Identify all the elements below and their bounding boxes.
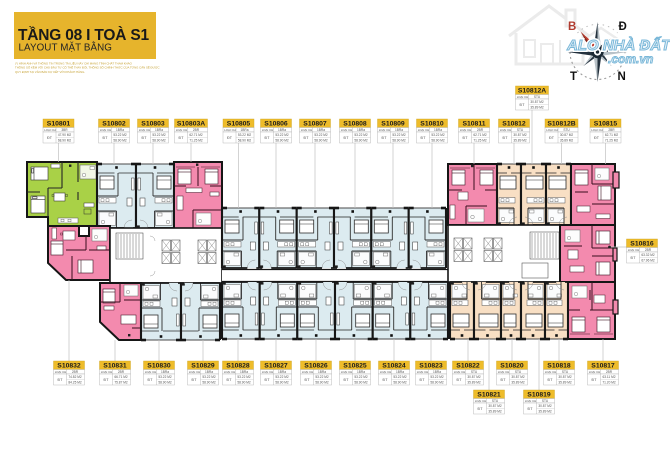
- svg-text:ĐT: ĐT: [501, 378, 507, 382]
- svg-text:S10820: S10820: [500, 363, 524, 370]
- svg-text:53.22 M2: 53.22 M2: [393, 375, 407, 379]
- svg-text:ĐT: ĐT: [148, 378, 154, 382]
- svg-text:58.90 M2: 58.90 M2: [354, 139, 368, 143]
- svg-text:ĐT: ĐT: [179, 136, 185, 140]
- svg-text:STU: STU: [517, 128, 524, 132]
- svg-text:1BRa: 1BRa: [357, 370, 365, 374]
- svg-text:S10809: S10809: [381, 121, 405, 128]
- svg-text:STU: STU: [562, 370, 569, 374]
- svg-text:STU: STU: [515, 370, 522, 374]
- svg-text:S10824: S10824: [382, 363, 406, 370]
- svg-text:ĐT: ĐT: [421, 136, 427, 140]
- svg-text:58.90 M2: 58.90 M2: [152, 139, 166, 143]
- svg-text:35.89 M2: 35.89 M2: [513, 139, 527, 143]
- svg-text:ĐT: ĐT: [520, 103, 526, 107]
- svg-text:ĐT: ĐT: [265, 136, 271, 140]
- svg-text:ĐT: ĐT: [265, 378, 271, 382]
- svg-text:ĐT: ĐT: [528, 407, 534, 411]
- svg-text:71.25 M2: 71.25 M2: [605, 139, 619, 143]
- svg-text:ĐT: ĐT: [457, 378, 463, 382]
- svg-text:LOẠI CH: LOẠI CH: [380, 370, 392, 374]
- svg-text:N: N: [618, 71, 626, 83]
- svg-text:1BRa: 1BRa: [155, 128, 163, 132]
- svg-text:ĐT: ĐT: [104, 378, 110, 382]
- svg-text:S10817: S10817: [591, 363, 615, 370]
- svg-text:S10821: S10821: [477, 392, 501, 399]
- svg-text:2BR: 2BR: [72, 370, 79, 374]
- svg-text:ĐT: ĐT: [549, 136, 555, 140]
- svg-text:LOẠI CH: LOẠI CH: [176, 128, 188, 132]
- svg-text:S10806: S10806: [264, 121, 288, 128]
- svg-text:58.90 M2: 58.90 M2: [238, 139, 252, 143]
- svg-text:ĐT: ĐT: [192, 378, 198, 382]
- svg-text:LOẠI CH: LOẠI CH: [454, 370, 466, 374]
- svg-text:LOẠI CH: LOẠI CH: [460, 128, 472, 132]
- svg-text:53.22 M2: 53.22 M2: [392, 133, 406, 137]
- svg-text:LOẠI CH: LOẠI CH: [379, 128, 391, 132]
- svg-text:ĐT: ĐT: [142, 136, 148, 140]
- svg-text:STU: STU: [534, 95, 541, 99]
- svg-text:LOẠI CH: LOẠI CH: [189, 370, 201, 374]
- svg-text:ĐT: ĐT: [463, 136, 469, 140]
- svg-text:S10816: S10816: [630, 241, 654, 248]
- svg-text:LOẠI CH: LOẠI CH: [301, 128, 313, 132]
- svg-text:ĐT: ĐT: [305, 378, 311, 382]
- svg-text:63.32 M2: 63.32 M2: [641, 253, 655, 257]
- svg-text:ĐT: ĐT: [227, 136, 233, 140]
- svg-text:47.90 M2: 47.90 M2: [58, 133, 72, 137]
- svg-text:1BRa: 1BRa: [241, 128, 249, 132]
- svg-text:S10829: S10829: [191, 363, 215, 370]
- svg-text:S10819: S10819: [527, 392, 551, 399]
- svg-text:66.71 M2: 66.71 M2: [114, 375, 128, 379]
- svg-text:84.25 M2: 84.25 M2: [68, 381, 82, 385]
- svg-text:1BRa: 1BRa: [278, 128, 286, 132]
- svg-text:LOẠI CH: LOẠI CH: [591, 128, 603, 132]
- svg-text:2BR: 2BR: [118, 370, 125, 374]
- svg-text:30.87 M2: 30.87 M2: [511, 375, 525, 379]
- svg-text:67.96 M2: 67.96 M2: [641, 259, 655, 263]
- svg-text:58.90 M2: 58.90 M2: [315, 381, 329, 385]
- svg-text:71.25 M2: 71.25 M2: [189, 139, 203, 143]
- svg-text:35.89 M2: 35.89 M2: [488, 410, 502, 414]
- svg-text:S10818: S10818: [547, 363, 571, 370]
- svg-text:2BR: 2BR: [193, 128, 200, 132]
- svg-text:58.90 M2: 58.90 M2: [392, 139, 406, 143]
- svg-text:2BR: 2BR: [606, 370, 613, 374]
- svg-text:68.90 M2: 68.90 M2: [58, 139, 72, 143]
- svg-text:S10823: S10823: [419, 363, 443, 370]
- svg-text:S10802: S10802: [102, 121, 126, 128]
- svg-text:1BRa: 1BRa: [396, 370, 404, 374]
- svg-text:S10830: S10830: [147, 363, 171, 370]
- svg-text:ĐT: ĐT: [478, 407, 484, 411]
- svg-text:35.89 M2: 35.89 M2: [511, 381, 525, 385]
- svg-text:LOẠI CH: LOẠI CH: [302, 370, 314, 374]
- svg-text:53.22 M2: 53.22 M2: [354, 133, 368, 137]
- svg-text:ĐT: ĐT: [503, 136, 509, 140]
- svg-text:S10810: S10810: [420, 121, 444, 128]
- svg-text:53.22 M2: 53.22 M2: [275, 133, 289, 137]
- svg-text:LOẠI CH: LOẠI CH: [262, 370, 274, 374]
- svg-text:58.90 M2: 58.90 M2: [314, 139, 328, 143]
- svg-text:ĐT: ĐT: [304, 136, 310, 140]
- svg-text:1BRa: 1BRa: [240, 370, 248, 374]
- svg-text:62.71 M2: 62.71 M2: [473, 133, 487, 137]
- svg-text:1BRa: 1BRa: [317, 128, 325, 132]
- svg-text:58.90 M2: 58.90 M2: [393, 381, 407, 385]
- svg-text:LOẠI CH: LOẠI CH: [546, 128, 558, 132]
- svg-text:S10807: S10807: [303, 121, 327, 128]
- svg-text:63.11 M2: 63.11 M2: [602, 375, 615, 379]
- svg-text:S10815: S10815: [594, 121, 618, 128]
- svg-text:53.22 M2: 53.22 M2: [430, 375, 444, 379]
- svg-text:STU: STU: [492, 399, 499, 403]
- svg-text:53.22 M2: 53.22 M2: [152, 133, 166, 137]
- svg-text:2BR: 2BR: [608, 128, 615, 132]
- svg-text:S10812B: S10812B: [547, 121, 575, 128]
- svg-text:LOẠI CH: LOẠI CH: [545, 370, 557, 374]
- svg-text:TẦNG 08 I TOÀ S1: TẦNG 08 I TOÀ S1: [18, 27, 149, 44]
- svg-text:T: T: [570, 71, 577, 83]
- svg-text:35.89 M2: 35.89 M2: [467, 381, 481, 385]
- svg-text:1BRa: 1BRa: [395, 128, 403, 132]
- svg-text:1BRa: 1BRa: [433, 370, 441, 374]
- svg-text:S10801: S10801: [47, 121, 71, 128]
- svg-text:71.20 M2: 71.20 M2: [602, 381, 616, 385]
- svg-text:1BRa: 1BRa: [434, 128, 442, 132]
- svg-text:Đ: Đ: [619, 21, 627, 33]
- svg-text:2BR: 2BR: [645, 248, 652, 252]
- svg-text:ĐT: ĐT: [548, 378, 554, 382]
- svg-text:ĐT: ĐT: [420, 378, 426, 382]
- svg-text:30.87 M2: 30.87 M2: [558, 375, 572, 379]
- svg-text:58.90 M2: 58.90 M2: [275, 381, 289, 385]
- svg-text:S10803: S10803: [141, 121, 165, 128]
- svg-text:ĐT: ĐT: [631, 256, 637, 260]
- svg-text:LOẠI CH: LOẠI CH: [628, 248, 640, 252]
- svg-text:53.22 M2: 53.22 M2: [275, 375, 289, 379]
- svg-text:30.87 M2: 30.87 M2: [560, 133, 574, 137]
- svg-text:30.87 M2: 30.87 M2: [467, 375, 481, 379]
- svg-text:S10827: S10827: [264, 363, 288, 370]
- svg-text:STU: STU: [542, 399, 549, 403]
- svg-text:ĐT: ĐT: [383, 378, 389, 382]
- svg-text:35.89 M2: 35.89 M2: [530, 106, 544, 110]
- svg-text:LOẠI CH: LOẠI CH: [341, 128, 353, 132]
- svg-text:1BRa: 1BRa: [318, 370, 326, 374]
- svg-text:LOẠI CH: LOẠI CH: [475, 399, 487, 403]
- svg-text:.com.vn: .com.vn: [608, 52, 653, 66]
- svg-text:62.71 M2: 62.71 M2: [605, 133, 619, 137]
- svg-text:S10828: S10828: [226, 363, 250, 370]
- svg-text:LOẠI CH: LOẠI CH: [145, 370, 157, 374]
- svg-text:53.22 M2: 53.22 M2: [158, 375, 172, 379]
- svg-text:58.90 M2: 58.90 M2: [431, 139, 445, 143]
- svg-text:LOẠI CH: LOẠI CH: [101, 370, 113, 374]
- svg-text:30.87 M2: 30.87 M2: [488, 404, 502, 408]
- svg-text:53.22 M2: 53.22 M2: [315, 375, 329, 379]
- svg-text:LOẠI CH: LOẠI CH: [55, 370, 67, 374]
- svg-text:S10811: S10811: [462, 121, 485, 128]
- svg-text:LOẠI CH: LOẠI CH: [498, 370, 510, 374]
- svg-text:75.87 M2: 75.87 M2: [114, 381, 128, 385]
- svg-text:LOẠI CH: LOẠI CH: [224, 128, 236, 132]
- svg-text:58.90 M2: 58.90 M2: [113, 139, 127, 143]
- svg-text:S10831: S10831: [103, 363, 127, 370]
- svg-text:1BRa: 1BRa: [161, 370, 169, 374]
- svg-text:S10826: S10826: [304, 363, 328, 370]
- svg-text:ĐT: ĐT: [592, 378, 598, 382]
- svg-text:S10825: S10825: [343, 363, 367, 370]
- svg-text:30.87 M2: 30.87 M2: [513, 133, 527, 137]
- svg-text:3BR: 3BR: [61, 128, 68, 132]
- svg-text:ĐT: ĐT: [47, 136, 53, 140]
- svg-text:53.22 M2: 53.22 M2: [314, 133, 328, 137]
- svg-text:62.71 M2: 62.71 M2: [189, 133, 203, 137]
- svg-text:LOẠI CH: LOẠI CH: [418, 128, 430, 132]
- svg-text:53.22 M2: 53.22 M2: [354, 375, 368, 379]
- svg-text:ĐT: ĐT: [227, 378, 233, 382]
- svg-text:1BRa: 1BRa: [357, 128, 365, 132]
- svg-text:LOẠI CH: LOẠI CH: [224, 370, 236, 374]
- svg-text:1BRa: 1BRa: [116, 128, 124, 132]
- svg-text:LOẠI CH: LOẠI CH: [517, 95, 529, 99]
- svg-text:LOẠI CH: LOẠI CH: [262, 128, 274, 132]
- svg-text:58.90 M2: 58.90 M2: [202, 381, 216, 385]
- svg-text:ĐT: ĐT: [344, 136, 350, 140]
- svg-text:STU: STU: [471, 370, 478, 374]
- svg-text:35.89 M2: 35.89 M2: [560, 139, 574, 143]
- svg-text:58.90 M2: 58.90 M2: [275, 139, 289, 143]
- svg-text:B: B: [568, 21, 576, 33]
- svg-text:LOẠI CH: LOẠI CH: [100, 128, 112, 132]
- svg-text:S10812: S10812: [502, 121, 526, 128]
- svg-text:1BRa: 1BRa: [205, 370, 213, 374]
- svg-text:53.22 M2: 53.22 M2: [202, 375, 216, 379]
- svg-text:LOẠI CH: LOẠI CH: [139, 128, 151, 132]
- svg-text:58.90 M2: 58.90 M2: [354, 381, 368, 385]
- svg-text:2BR: 2BR: [477, 128, 484, 132]
- svg-text:S10812A: S10812A: [518, 88, 546, 95]
- svg-text:53.22 M2: 53.22 M2: [237, 375, 251, 379]
- svg-text:58.90 M2: 58.90 M2: [158, 381, 172, 385]
- svg-text:LOẠI CH: LOẠI CH: [525, 399, 537, 403]
- svg-text:1BRa: 1BRa: [278, 370, 286, 374]
- svg-text:LOẠI CH: LOẠI CH: [589, 370, 601, 374]
- svg-text:S10808: S10808: [343, 121, 367, 128]
- svg-text:S10832: S10832: [57, 363, 81, 370]
- svg-text:S10805: S10805: [227, 121, 251, 128]
- svg-text:S10822: S10822: [456, 363, 480, 370]
- svg-text:LOẠI CH: LOẠI CH: [44, 128, 56, 132]
- svg-text:53.22 M2: 53.22 M2: [431, 133, 445, 137]
- svg-text:74.82 M2: 74.82 M2: [68, 375, 82, 379]
- svg-text:LAYOUT MẶT BẰNG: LAYOUT MẶT BẰNG: [19, 43, 113, 54]
- svg-text:LOẠI CH: LOẠI CH: [500, 128, 512, 132]
- svg-text:53.22 M2: 53.22 M2: [238, 133, 252, 137]
- svg-text:STU: STU: [563, 128, 570, 132]
- svg-text:ĐT: ĐT: [382, 136, 388, 140]
- svg-text:71.25 M2: 71.25 M2: [473, 139, 487, 143]
- svg-text:35.89 M2: 35.89 M2: [538, 410, 552, 414]
- svg-text:LOẠI CH: LOẠI CH: [417, 370, 429, 374]
- svg-text:LOẠI CH: LOẠI CH: [341, 370, 353, 374]
- svg-text:ĐT: ĐT: [344, 378, 350, 382]
- svg-text:58.90 M2: 58.90 M2: [237, 381, 251, 385]
- svg-text:53.22 M2: 53.22 M2: [113, 133, 127, 137]
- svg-text:ĐT: ĐT: [103, 136, 109, 140]
- svg-text:30.87 M2: 30.87 M2: [538, 404, 552, 408]
- svg-text:S10803A: S10803A: [177, 121, 205, 128]
- svg-text:30.87 M2: 30.87 M2: [530, 100, 544, 104]
- svg-text:ĐT: ĐT: [58, 378, 64, 382]
- svg-text:58.90 M2: 58.90 M2: [430, 381, 444, 385]
- svg-text:ĐT: ĐT: [594, 136, 600, 140]
- svg-text:35.89 M2: 35.89 M2: [558, 381, 572, 385]
